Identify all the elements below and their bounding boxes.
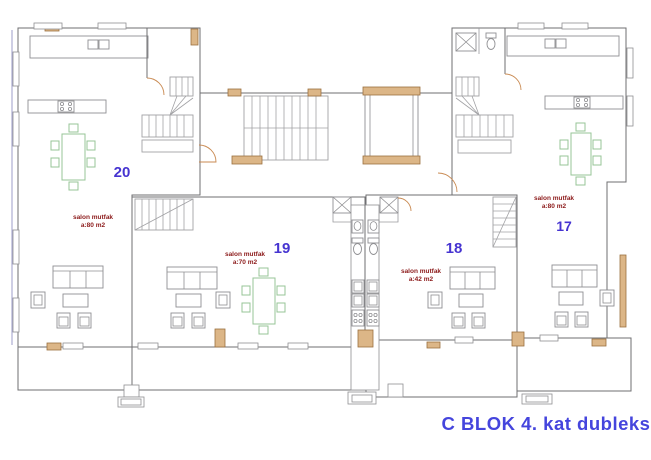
stair-landing — [458, 140, 511, 153]
apartment-17-room-label: salon mutfak — [534, 195, 574, 202]
island-counter — [28, 100, 106, 113]
shower-icon — [333, 197, 351, 222]
column — [308, 89, 321, 96]
sofa-set — [552, 265, 614, 327]
kitchen-bath-strip — [351, 205, 379, 390]
apartment-19-number: 19 — [274, 240, 291, 257]
window — [13, 52, 19, 86]
door-swing-icon — [147, 78, 164, 95]
post — [388, 384, 403, 397]
apartment-18-number: 18 — [446, 240, 463, 257]
kitchen-counter — [507, 36, 619, 56]
elevator-beam — [363, 156, 420, 164]
window — [238, 343, 258, 349]
sofa — [167, 267, 217, 289]
apartment-20-room-label: salon mutfak — [73, 214, 113, 221]
elevator — [365, 93, 418, 163]
column — [232, 156, 262, 164]
window — [98, 23, 126, 29]
post — [124, 385, 139, 397]
stove-icon — [352, 310, 364, 326]
apartment-17-number: 17 — [556, 218, 572, 234]
tv-unit — [428, 292, 442, 308]
dining-table — [571, 133, 591, 175]
staircase-apartment-18 — [493, 197, 516, 247]
apartment-19: 19 salon mutfak a:70 m2 — [135, 197, 351, 334]
window — [518, 23, 544, 29]
kitchen-counter — [30, 36, 148, 58]
door-swing-icon — [398, 198, 411, 211]
sofa — [552, 265, 597, 287]
dining-table — [62, 134, 85, 180]
stove-icon — [367, 310, 379, 326]
apartment-20-number: 20 — [114, 164, 131, 181]
floor-plan-page: 20 salon mutfak a:80 m2 — [0, 0, 651, 460]
window — [138, 343, 158, 349]
window — [627, 48, 633, 78]
sofa-set — [31, 266, 103, 328]
apartment-18-room-label: salon mutfak — [401, 268, 441, 275]
stove-icon — [58, 101, 74, 112]
door-swing-icon — [199, 145, 216, 162]
footing — [348, 392, 376, 404]
sofa-set — [428, 267, 495, 328]
dining-table — [253, 278, 275, 324]
apartment-19-area-label: a:70 m2 — [233, 259, 258, 266]
shower-icon — [379, 197, 398, 222]
footing — [522, 394, 552, 404]
window — [540, 335, 558, 341]
staircase-apartment-19 — [135, 199, 193, 230]
sofa — [53, 266, 103, 288]
apartment-20-area-label: a:80 m2 — [81, 222, 106, 229]
washbasin-icon — [352, 220, 363, 233]
window — [562, 23, 588, 29]
dining-set — [51, 124, 95, 190]
apartment-18-area-label: a:42 m2 — [409, 276, 434, 283]
door-swing-icon — [505, 74, 521, 90]
floor-plan-drawing: 20 salon mutfak a:80 m2 — [0, 0, 651, 460]
coffee-table — [559, 292, 583, 305]
toilet-icon — [486, 33, 496, 50]
window — [627, 96, 633, 126]
stove-icon — [574, 97, 590, 108]
staircase-apartment-17 — [456, 77, 513, 153]
window — [288, 343, 308, 349]
apartment-18: 18 salon mutfak a:42 m2 — [379, 197, 516, 328]
window — [13, 298, 19, 332]
coffee-table — [459, 294, 483, 307]
column — [512, 332, 524, 346]
door-swing-icon — [438, 173, 457, 192]
staircase-apartment-20 — [142, 77, 193, 152]
window — [63, 343, 83, 349]
apartment-19-room-label: salon mutfak — [225, 251, 265, 258]
footing — [118, 397, 144, 407]
sofa — [450, 267, 495, 289]
kitchen-counter — [367, 280, 379, 326]
column — [592, 339, 606, 346]
column — [427, 342, 440, 348]
tv-unit — [216, 292, 230, 308]
dining-set — [242, 268, 285, 334]
tv-unit — [31, 292, 45, 308]
window — [455, 337, 473, 343]
kitchen-counter — [352, 280, 364, 326]
column — [215, 329, 225, 347]
coffee-table — [63, 294, 88, 307]
window-sill — [620, 255, 626, 327]
stair-landing — [142, 140, 193, 152]
common-staircase — [244, 96, 328, 160]
island-counter — [545, 96, 623, 109]
column — [228, 89, 241, 96]
dining-set — [560, 123, 601, 185]
window — [13, 230, 19, 264]
coffee-table — [176, 294, 201, 307]
window — [13, 112, 19, 146]
column — [358, 330, 373, 347]
tv-unit — [600, 290, 614, 306]
sofa-set — [167, 267, 230, 328]
plan-title: C BLOK 4. kat dubleks — [442, 413, 651, 434]
column — [47, 343, 61, 350]
elevator-beam — [363, 87, 420, 95]
washbasin-icon — [368, 220, 379, 233]
column — [191, 29, 198, 45]
window — [34, 23, 62, 29]
apartment-17-area-label: a:80 m2 — [542, 203, 567, 210]
shower-icon — [456, 28, 479, 54]
